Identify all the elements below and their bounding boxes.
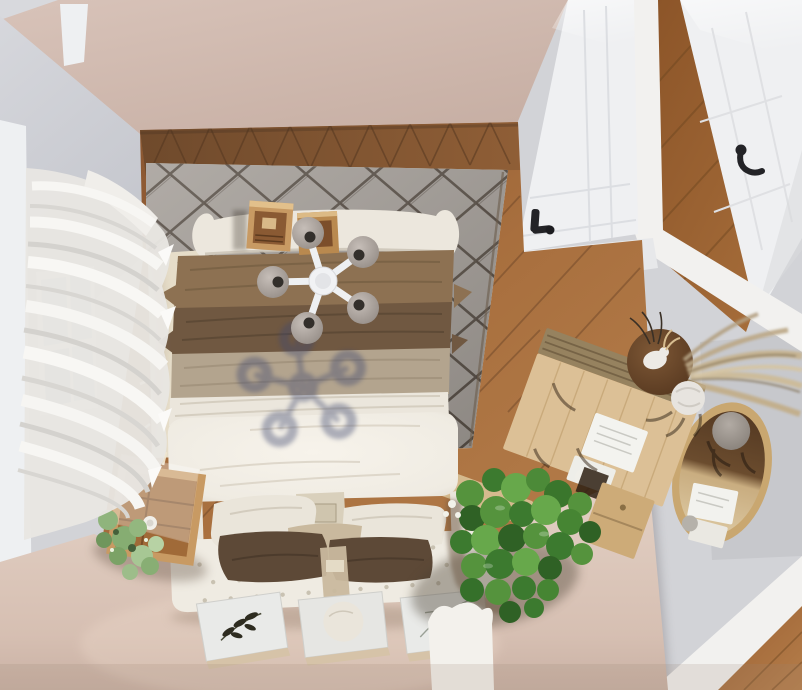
bottom-vignette: [0, 664, 802, 690]
pillow-brown-left: [218, 531, 328, 582]
strap-tail: [320, 546, 350, 602]
scene-canvas: [0, 0, 802, 690]
white-flower: [448, 500, 456, 508]
print-moon: [298, 591, 391, 666]
sheer-curtains: [18, 168, 176, 540]
strap-buckle: [326, 560, 344, 572]
curtain-rod-bracket: [60, 4, 88, 66]
bedroom-top-down-render: [0, 0, 802, 690]
